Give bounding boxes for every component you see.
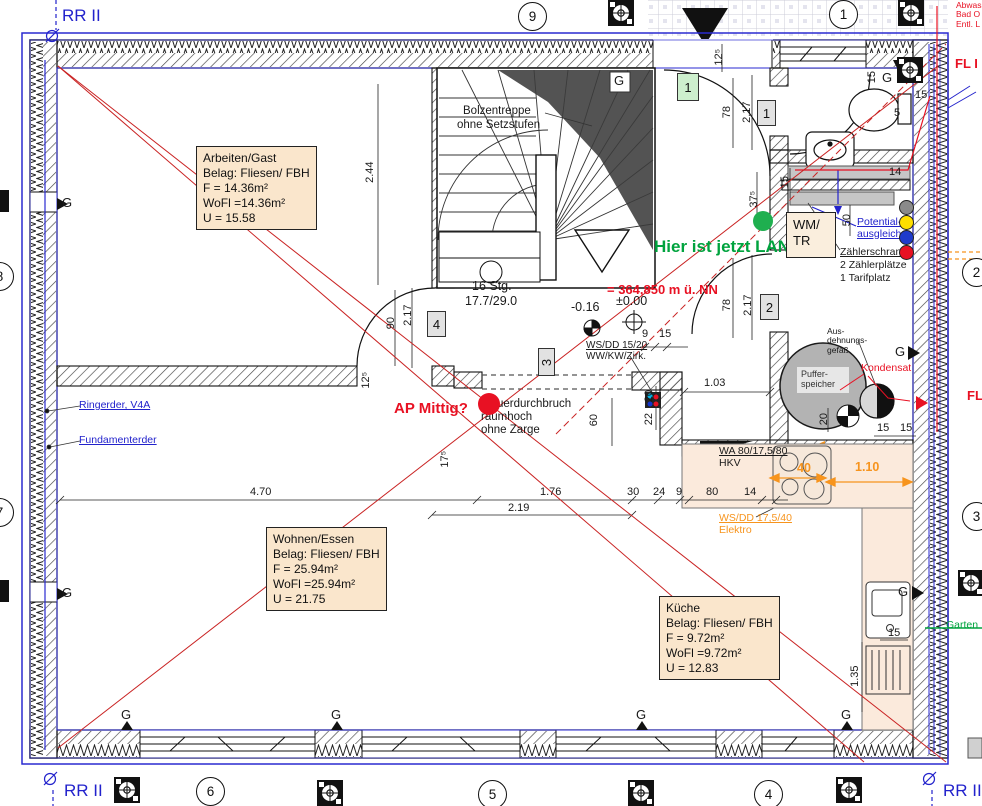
rr-label-bottom-right: RR II [943, 781, 982, 800]
dim-15-rot-a: 15 [779, 164, 791, 200]
garten-label: Garten [946, 620, 978, 632]
rr-label-bottom-left: RR II [64, 781, 103, 800]
dim-135: 1.35 [849, 658, 861, 694]
dishwasher [866, 646, 910, 694]
toilet [849, 89, 899, 131]
grid-bubble-6: 6 [196, 777, 225, 806]
fl-label-top: FL I [955, 57, 978, 72]
dim-103: 1.03 [704, 377, 725, 389]
position-chip-4: 4 [427, 311, 446, 337]
dim-15e: 15 [900, 422, 912, 434]
dim-244: 2.44 [364, 154, 376, 190]
stair-note-1: Bolzentreppe [463, 105, 531, 118]
position-chip-1-green: 1 [677, 73, 699, 101]
g-label-bath: G [882, 71, 892, 86]
room-label-arbeiten: Arbeiten/GastBelag: Fliesen/ FBH F = 14.… [196, 146, 317, 230]
dim-14b: 14 [889, 166, 901, 178]
dim-9: 9 [676, 486, 682, 498]
wsdd-ww-label: WS/DD 15/20 WW/KW/Zirk. [586, 340, 647, 362]
position-chip-3: 3 [538, 348, 555, 376]
dim-15-rot-b: 15 [866, 59, 878, 95]
dim-24: 24 [653, 486, 665, 498]
blue-misc [948, 86, 976, 108]
g-label-bottom-4: G [841, 708, 851, 723]
buffer-tank-label: Puffer- speicher [801, 369, 835, 389]
window-bottom-2 [362, 730, 520, 758]
dim-110-orange: 1.10 [855, 460, 879, 474]
dim-78a: 78 [721, 94, 733, 130]
stair-ratio: 17.7/29.0 [465, 294, 517, 308]
dim-217c: 2.17 [742, 287, 754, 323]
g-label-stair: G [614, 74, 624, 89]
dim-9b: 9 [642, 328, 648, 340]
dim-50: 50 [841, 202, 853, 238]
dim-470: 4.70 [250, 486, 271, 498]
wsdd-elektro-label: WS/DD 17,5/40 Elektro [719, 513, 792, 537]
floor-plan: RR II RR II RR II Abwass Bad O Entl. L F… [0, 0, 982, 806]
g-label-bottom-2: G [331, 708, 341, 723]
level-minus: -0.16 [571, 300, 600, 314]
wall-breakthrough-dashed [482, 375, 632, 389]
dim-15d: 15 [877, 422, 889, 434]
grid-bubble-9: 9 [518, 2, 547, 31]
window-top [780, 40, 866, 68]
dim-219: 2.19 [508, 502, 529, 514]
edge-chip [968, 738, 982, 758]
window-bottom-3 [556, 730, 716, 758]
room-label-wohnen: Wohnen/EssenBelag: Fliesen/ FBH F = 25.9… [266, 527, 387, 611]
dim-125a: 12⁵ [713, 39, 725, 75]
dim-5: 5 [894, 107, 900, 119]
dim-14: 14 [744, 486, 756, 498]
dim-125b: 12⁵ [360, 362, 372, 398]
pipe-dot-gray [899, 200, 914, 215]
wm-tr-box: WM/TR [786, 212, 836, 258]
room-label-kueche: KücheBelag: Fliesen/ FBH F = 9.72m²WoFl … [659, 596, 780, 680]
dim-60: 60 [588, 402, 600, 438]
potential-label: Potential- ausgleich [857, 217, 901, 241]
dim-80: 80 [706, 486, 718, 498]
ap-note: AP Mittig? [394, 401, 468, 418]
window-bottom-1 [140, 730, 315, 758]
dim-78b: 78 [721, 287, 733, 323]
pipe-dot-red [899, 245, 914, 260]
window-bottom-4 [762, 730, 834, 758]
g-label-bottom-1: G [121, 708, 131, 723]
position-chip-1-gray: 1 [757, 100, 776, 126]
fundamenterder-label: Fundamenterder [79, 435, 157, 447]
expansion-vessel-label: Aus- dehnungs- gefäß [827, 327, 867, 355]
dim-22: 22 [643, 401, 655, 437]
zaehlerschrank-label: Zählerschrank 2 Zählerplätze 1 Tarifplat… [840, 246, 907, 284]
g-label-technik: G [895, 345, 905, 360]
g-label-bottom-3: G [636, 708, 646, 723]
dim-30: 30 [627, 486, 639, 498]
ringerder-label: Ringerder, V4A [79, 400, 150, 412]
wa-hkv-label: WA 80/17,5/80 HKV [719, 446, 788, 470]
grid-bubble-4: 4 [754, 780, 783, 806]
fl-label-mid: FL [967, 389, 982, 404]
dim-20a: 20 [818, 401, 830, 437]
level-zero: ±0.00 [616, 294, 647, 308]
rr-label-top-left: RR II [62, 6, 101, 25]
dim-15b: 15 [659, 328, 671, 340]
pipe-dot-yellow [899, 215, 914, 230]
kondensat-label: Kondensat [861, 363, 911, 375]
g-label-kitchen: G [898, 585, 908, 600]
stair-note-2: ohne Setzstufen [457, 119, 540, 132]
dim-90: 90 [385, 305, 397, 341]
position-chip-2: 2 [760, 294, 779, 320]
lan-note: Hier ist jetzt LAN [654, 237, 790, 256]
dim-40-orange: 40 [797, 461, 811, 475]
grid-bubble-1: 1 [829, 0, 858, 29]
dim-175: 17⁵ [439, 441, 451, 477]
dim-15f: 15 [888, 627, 900, 639]
pipe-dot-blue [899, 230, 914, 245]
dim-15c: 15 [915, 89, 927, 101]
g-label-left-2: G [62, 586, 72, 601]
staircase [437, 68, 655, 288]
ap-position-dot [478, 393, 500, 415]
dim-217b: 2.17 [741, 94, 753, 130]
grid-bubble-5: 5 [478, 780, 507, 806]
abwasser-note: Abwass Bad O Entl. L [956, 1, 982, 29]
dim-176: 1.76 [540, 486, 561, 498]
stair-steps: 16 Stg. [472, 279, 512, 293]
lan-position-dot [753, 211, 773, 231]
dim-217a: 2.17 [402, 297, 414, 333]
g-label-left-1: G [62, 196, 72, 211]
